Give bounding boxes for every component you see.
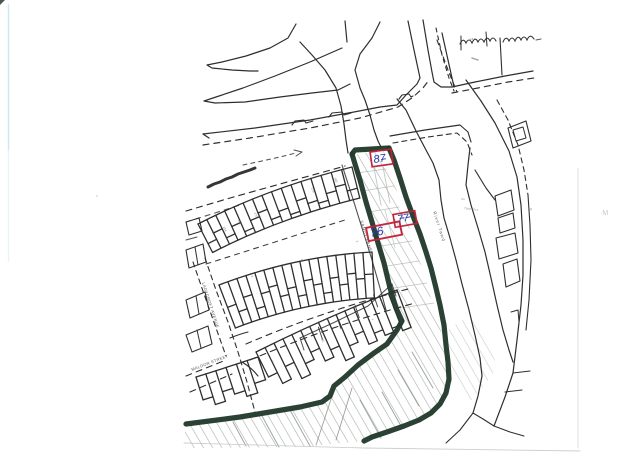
svg-text:141: 141 <box>470 37 475 41</box>
svg-text:41: 41 <box>461 197 465 201</box>
svg-text:·M: ·M <box>600 210 608 217</box>
